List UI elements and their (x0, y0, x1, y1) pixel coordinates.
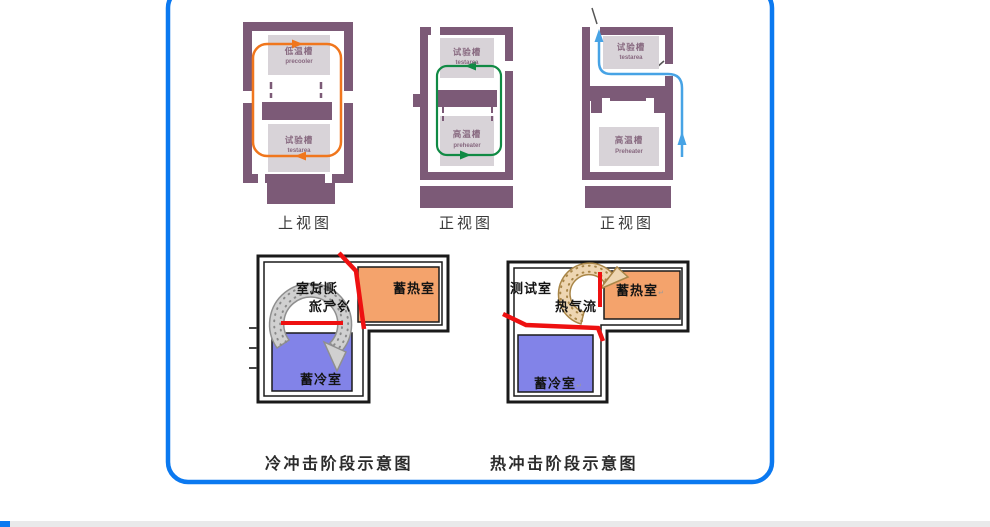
air-flow-label: 热气流 (555, 299, 597, 314)
wall-notch-right (343, 91, 355, 103)
lower-box-label-cn: 高温槽 (615, 135, 644, 145)
test-room-label: 测试室 (510, 281, 552, 296)
front-view-diagram-2: 试验槽 testarea 高温槽 Preheater 正视图 (582, 8, 687, 232)
return-mark: ↵ (658, 290, 664, 297)
return-mark: ↵ (576, 383, 582, 390)
upper-box-label-cn: 低温槽 (284, 46, 314, 56)
lower-box-label-en: preheater (453, 143, 481, 149)
right-wall-gap (504, 61, 514, 71)
base-slab (585, 186, 671, 208)
schematic-canvas: 低温槽 precooler 试验槽 testarea 上视图 试验槽 testa… (0, 0, 990, 527)
upper-box-label-en: testarea (619, 55, 643, 61)
diagram-caption: 正视图 (439, 215, 493, 232)
cold-room-label: 蓄冷室 (534, 376, 576, 391)
base-pedestal (267, 183, 335, 204)
test-slot-box (440, 38, 494, 78)
diagram-caption: 上视图 (278, 215, 332, 232)
air-flow-label: 冷气流 (308, 299, 350, 314)
page-background: 低温槽 precooler 试验槽 testarea 上视图 试验槽 testa… (0, 0, 990, 527)
vent-flap (592, 8, 597, 24)
preheater-box (440, 116, 494, 166)
shelf-column (654, 101, 665, 113)
hot-shock-diagram: 测试室 热气流 蓄热室 ↵ 蓄冷室 ↵ 热冲击阶段示意图 (490, 262, 688, 473)
top-wall-gap (431, 26, 440, 36)
upper-box-label-en: precooler (285, 59, 313, 65)
partition-bar (262, 102, 332, 120)
lower-box-label-en: Preheater (615, 149, 643, 155)
diagram-caption: 正视图 (600, 215, 654, 232)
upper-box-label-en: testarea (455, 60, 479, 66)
footer-divider-bar (0, 521, 990, 527)
lower-box-label-cn: 试验槽 (285, 135, 314, 145)
shelf-column (591, 101, 602, 113)
preheater-box (599, 127, 659, 166)
shelf-notch (602, 98, 610, 104)
cold-room-label: 蓄冷室 (300, 372, 342, 387)
test-slot-box (603, 36, 659, 69)
top-view-diagram: 低温槽 precooler 试验槽 testarea 上视图 (241, 22, 355, 232)
heat-room-label: 蓄热室 (616, 283, 658, 298)
front-view-diagram-1: 试验槽 testarea 高温槽 preheater 正视图 (413, 26, 514, 232)
test-room-label: 测试室 (295, 281, 337, 296)
lower-box-label-cn: 高温槽 (453, 129, 482, 139)
shelf-bar (438, 90, 497, 107)
diagram-caption: 热冲击阶段示意图 (490, 454, 638, 473)
wall-gap (325, 172, 332, 183)
wall-notch-left (241, 91, 253, 103)
diagram-caption: 冷冲击阶段示意图 (265, 454, 413, 473)
lower-box-label-en: testarea (287, 148, 311, 154)
wall-gap (258, 172, 265, 183)
arrow-up-icon (678, 131, 687, 145)
base-slab (420, 186, 513, 208)
upper-box-label-cn: 试验槽 (617, 42, 646, 52)
cold-shock-diagram: 测试室 冷气流 蓄热室 蓄冷室 冷冲击阶段示意图 (249, 253, 448, 473)
heat-room-label: 蓄热室 (393, 281, 435, 296)
left-wall-tab (413, 94, 420, 107)
shelf-notch (646, 98, 654, 104)
upper-box-label-cn: 试验槽 (453, 47, 482, 57)
footer-accent-segment (0, 521, 10, 527)
